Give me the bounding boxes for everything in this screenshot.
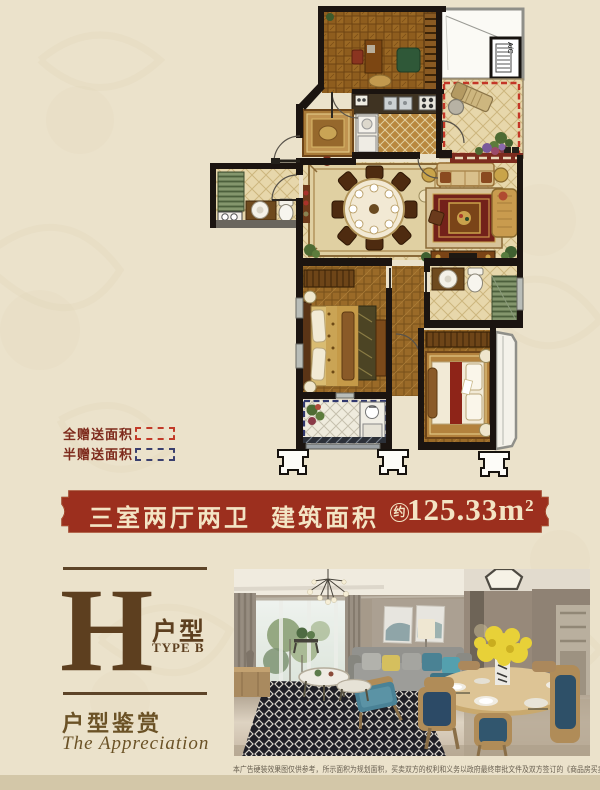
svg-text:A/C: A/C [506, 42, 513, 54]
